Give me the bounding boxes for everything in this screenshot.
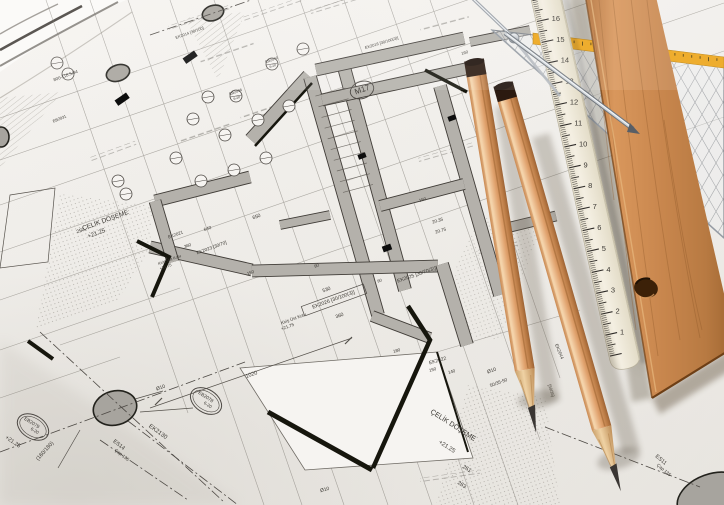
ruler-number: 8 <box>588 181 592 190</box>
ruler-number: 9 <box>584 160 588 169</box>
ruler-number: 6 <box>597 223 601 232</box>
ruler-number: 7 <box>593 202 597 211</box>
ruler-number: 4 <box>606 265 610 274</box>
ruler-number: 10 <box>579 139 587 148</box>
ruler-number: 5 <box>602 244 606 253</box>
light-glare <box>0 0 724 90</box>
ruler-number: 12 <box>570 98 578 107</box>
ruler-number: 1 <box>620 328 624 337</box>
ruler-number: 11 <box>574 118 582 127</box>
photo-blueprint-with-drafting-tools: M17ÇELİK DÖŞEME+21.25ÇELİK DÖŞEME+21.252… <box>0 0 724 505</box>
ruler-number: 2 <box>615 307 619 316</box>
ruler-number: 3 <box>611 286 615 295</box>
scene-canvas: M17ÇELİK DÖŞEME+21.25ÇELİK DÖŞEME+21.252… <box>0 0 724 505</box>
